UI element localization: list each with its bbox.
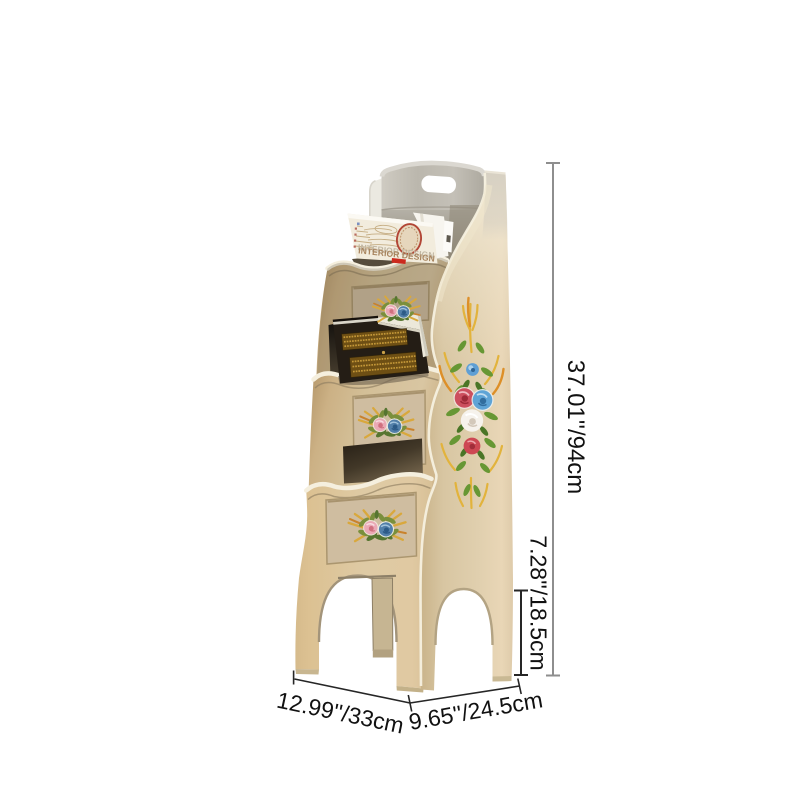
svg-text:37.01''/94cm: 37.01''/94cm [562, 360, 589, 495]
svg-text:7.28''/18.5cm: 7.28''/18.5cm [525, 535, 551, 670]
